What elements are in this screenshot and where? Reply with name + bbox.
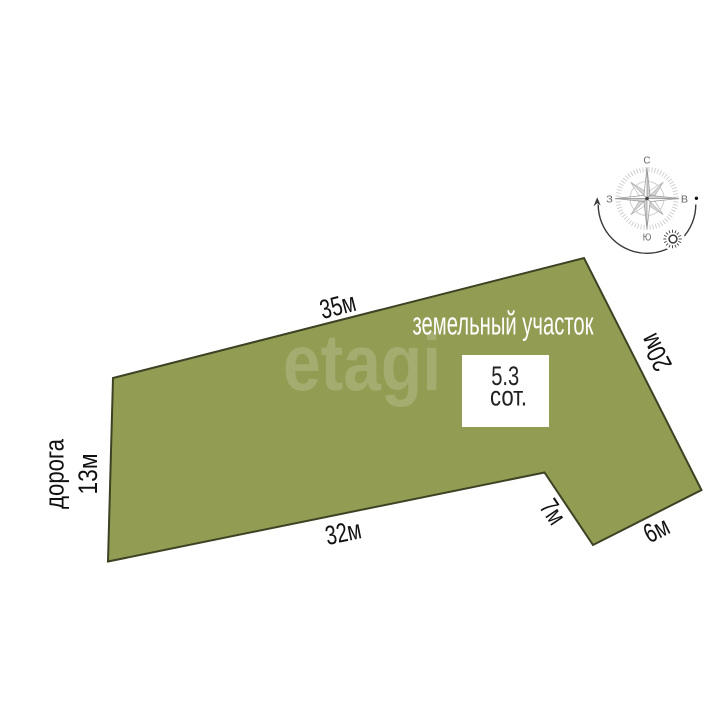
svg-text:32м: 32м bbox=[323, 514, 364, 551]
svg-text:дорога: дорога bbox=[40, 438, 70, 509]
svg-text:13м: 13м bbox=[73, 454, 103, 495]
svg-text:В: В bbox=[681, 193, 688, 205]
svg-text:З: З bbox=[606, 193, 613, 205]
svg-text:С: С bbox=[643, 155, 651, 167]
svg-text:Ю: Ю bbox=[643, 232, 652, 244]
svg-text:сот.: сот. bbox=[490, 381, 527, 412]
svg-text:земельный участок: земельный участок bbox=[413, 306, 595, 342]
